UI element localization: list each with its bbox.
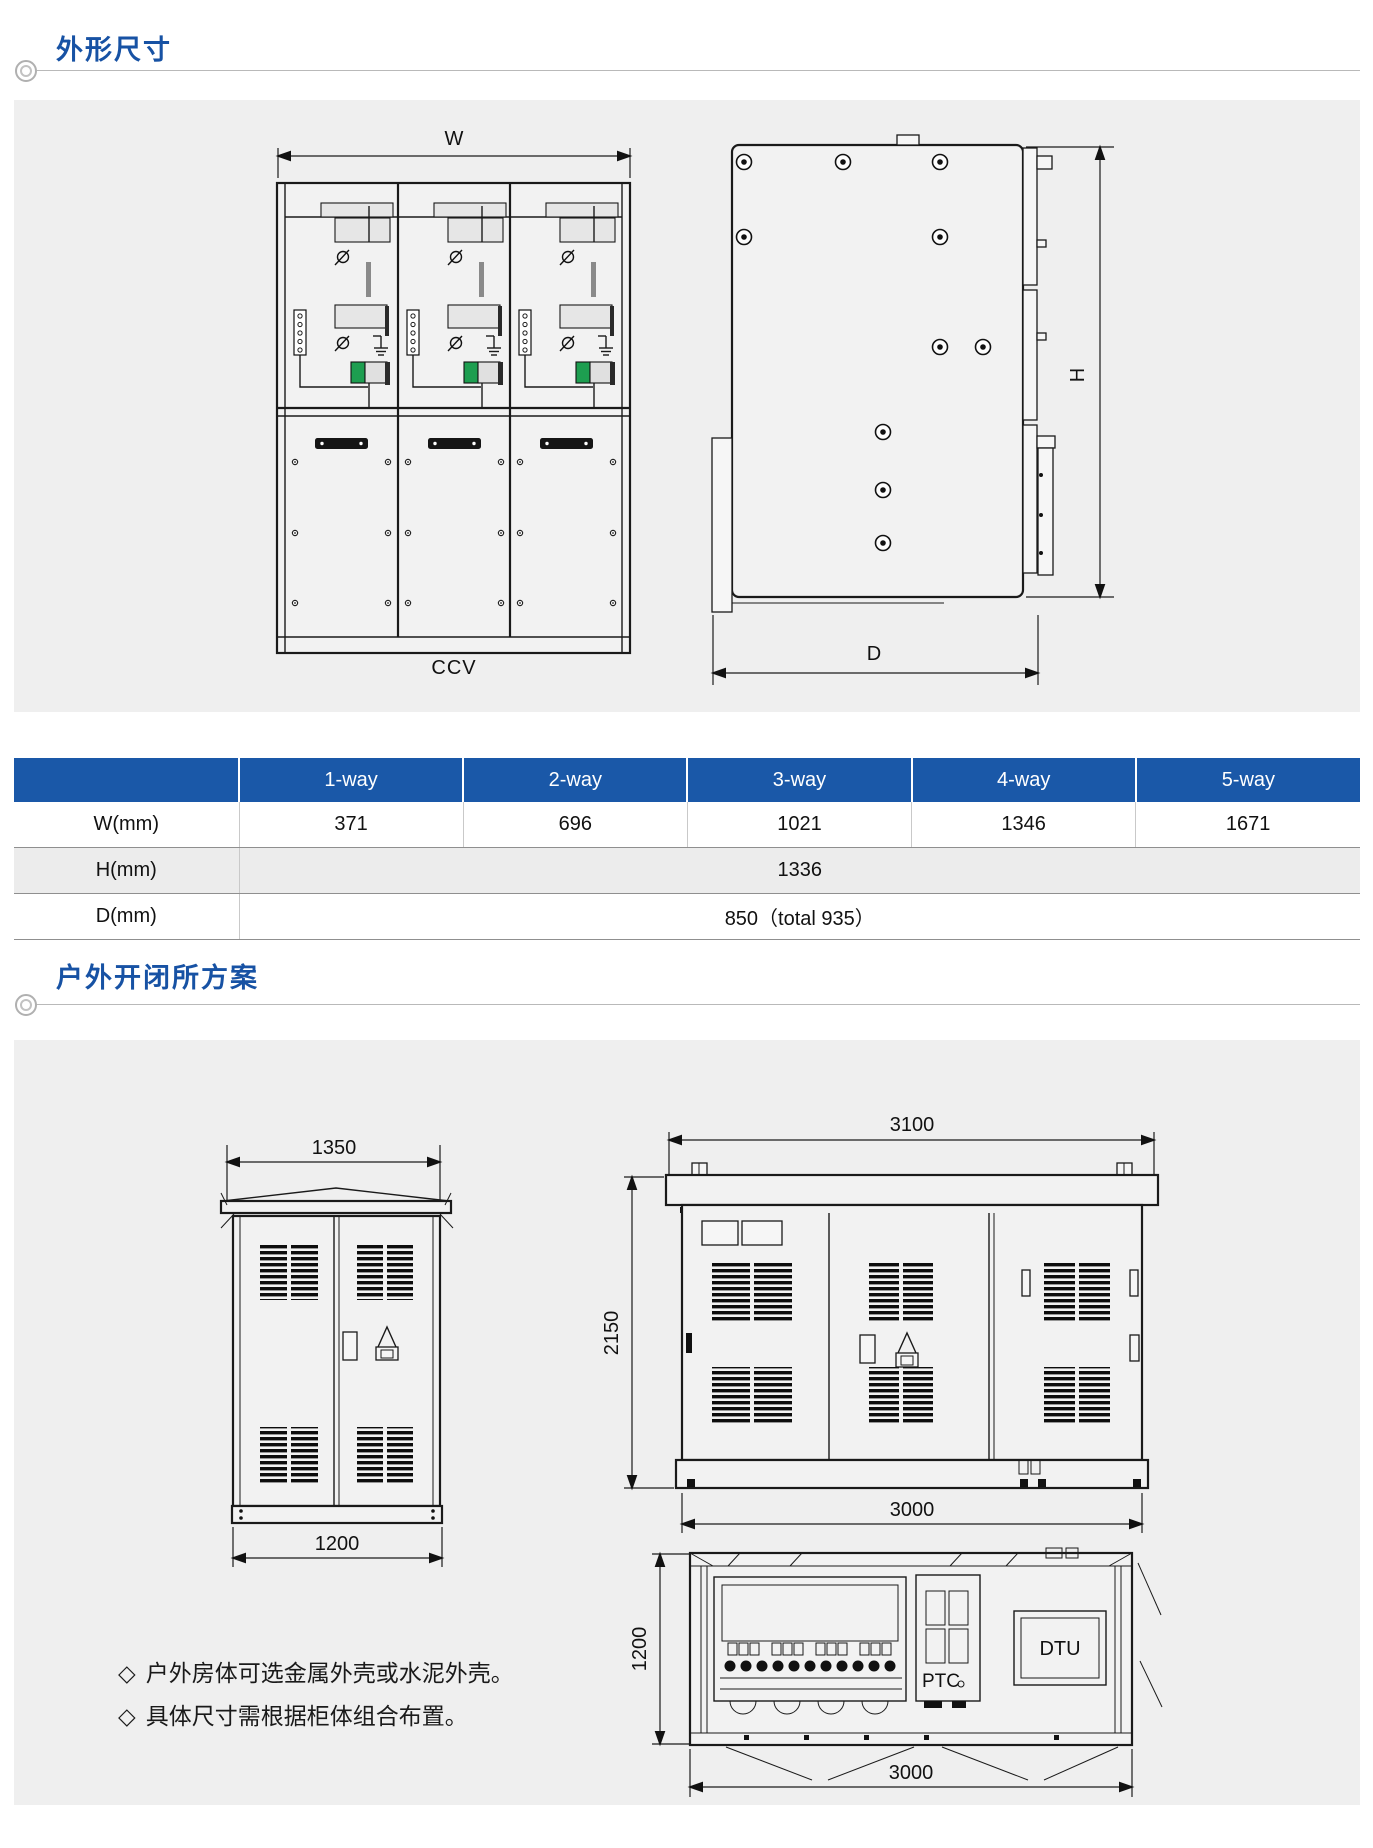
dim-cabinet-width: 1350 — [312, 1137, 357, 1159]
note-text: 户外房体可选金属外壳或水泥外壳。 — [146, 1660, 514, 1686]
note-line: ◇具体尺寸需根据柜体组合布置。 — [118, 1695, 514, 1738]
value-d-merged: 850（total 935） — [239, 894, 1360, 940]
row-label-h: H(mm) — [14, 848, 239, 894]
table-row-width: W(mm) 371 696 1021 1346 1671 — [14, 802, 1360, 848]
front-view-drawing: W CCV — [277, 128, 630, 679]
dim-label-w: W — [445, 128, 464, 150]
col-header-3way: 3-way — [687, 758, 911, 802]
louver-vent — [357, 1427, 383, 1483]
louver-vent — [1044, 1367, 1075, 1425]
louver-vent — [260, 1243, 287, 1300]
footnotes: ◇户外房体可选金属外壳或水泥外壳。 ◇具体尺寸需根据柜体组合布置。 — [118, 1652, 514, 1738]
side-view-drawing: H D — [712, 135, 1114, 685]
bullet-ring-icon — [15, 60, 37, 82]
dim-plan-depth: 1200 — [629, 1627, 651, 1672]
section-header-dimensions: 外形尺寸 — [0, 28, 1373, 88]
value-w-2way: 696 — [463, 802, 687, 848]
value-w-1way: 371 — [239, 802, 463, 848]
louver-vent — [357, 1243, 383, 1300]
value-h-merged: 1336 — [239, 848, 1360, 894]
louver-vent — [260, 1427, 287, 1483]
ptc-label: PTC — [922, 1671, 960, 1692]
catalog-page: 外形尺寸 — [0, 0, 1373, 1848]
dim-label-h: H — [1067, 368, 1089, 382]
value-w-5way: 1671 — [1136, 802, 1360, 848]
front-view-caption: CCV — [431, 657, 476, 679]
louver-vent — [712, 1261, 750, 1321]
col-header-5way: 5-way — [1136, 758, 1360, 802]
table-row-depth: D(mm) 850（total 935） — [14, 894, 1360, 940]
dim-cabinet-base: 1200 — [315, 1533, 360, 1555]
section-title-outdoor: 户外开闭所方案 — [56, 956, 259, 995]
section-header-outdoor: 户外开闭所方案 — [0, 956, 1373, 1016]
col-header-1way: 1-way — [239, 758, 463, 802]
diamond-bullet-icon: ◇ — [118, 1652, 136, 1695]
page-title: 外形尺寸 — [56, 28, 172, 67]
value-w-4way: 1346 — [912, 802, 1136, 848]
row-label-d: D(mm) — [14, 894, 239, 940]
note-line: ◇户外房体可选金属外壳或水泥外壳。 — [118, 1652, 514, 1695]
note-text: 具体尺寸需根据柜体组合布置。 — [146, 1703, 468, 1729]
louver-vent — [869, 1367, 899, 1425]
col-header-4way: 4-way — [912, 758, 1136, 802]
dim-station-base: 3000 — [890, 1499, 935, 1521]
header-rule — [30, 70, 1360, 71]
louver-vent — [869, 1261, 899, 1321]
value-w-3way: 1021 — [687, 802, 911, 848]
louver-vent — [1044, 1261, 1075, 1321]
dimension-table: 1-way 2-way 3-way 4-way 5-way W(mm) 371 … — [14, 758, 1360, 940]
door-handle — [860, 1335, 875, 1363]
dim-plan-width: 3000 — [889, 1762, 934, 1784]
table-row-height: H(mm) 1336 — [14, 848, 1360, 894]
station-plan-drawing: PTC DTU 1200 — [629, 1548, 1162, 1797]
header-rule-2 — [30, 1004, 1360, 1005]
dim-station-roof: 3100 — [890, 1114, 935, 1136]
bullet-ring-icon-2 — [15, 994, 37, 1016]
dimension-drawings: W CCV — [14, 90, 1360, 712]
door-handle — [1130, 1335, 1139, 1361]
dim-label-d: D — [867, 643, 881, 665]
table-header-row: 1-way 2-way 3-way 4-way 5-way — [14, 758, 1360, 802]
louver-vent — [712, 1367, 750, 1425]
door-handle — [343, 1332, 357, 1360]
door-handle — [686, 1333, 692, 1353]
dtu-label: DTU — [1039, 1638, 1080, 1660]
row-label-w: W(mm) — [14, 802, 239, 848]
outdoor-cabinet-drawing: 1350 — [221, 1137, 453, 1567]
station-front-drawing: 3100 — [601, 1114, 1158, 1533]
col-header-blank — [14, 758, 239, 802]
diamond-bullet-icon: ◇ — [118, 1695, 136, 1738]
col-header-2way: 2-way — [463, 758, 687, 802]
dim-station-height: 2150 — [601, 1311, 623, 1356]
